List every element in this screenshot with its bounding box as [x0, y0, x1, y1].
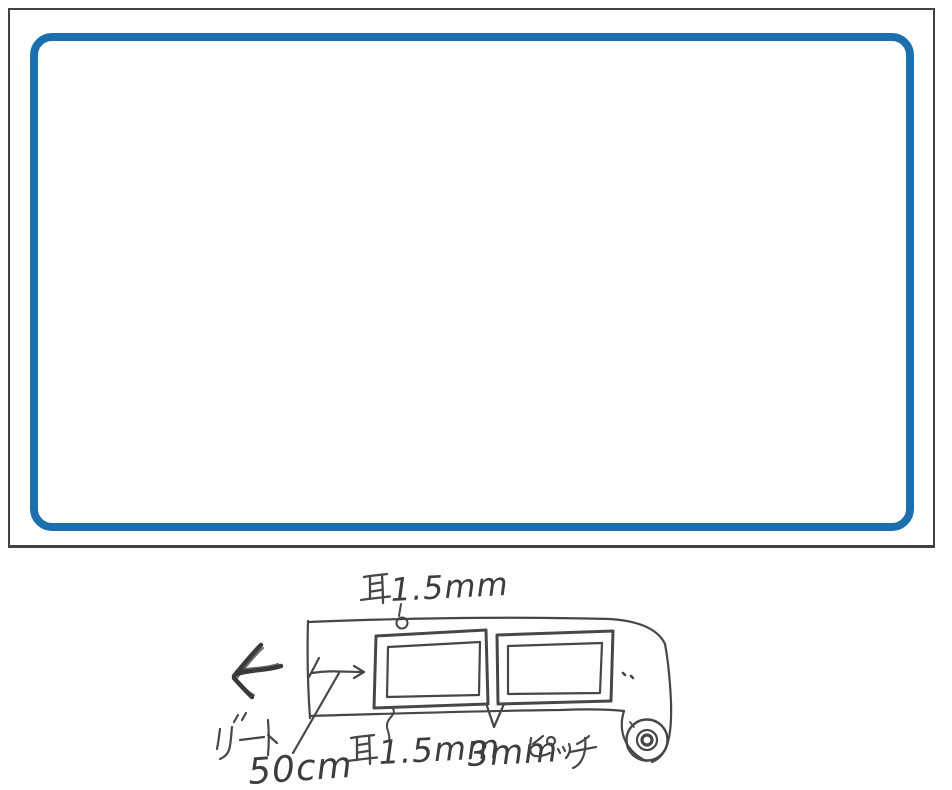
scanned-sheet: 1.5mm 1.5mm 50cm [0, 0, 952, 790]
lead-annotation: 50cm [217, 713, 354, 790]
ear-top-value: 1.5mm [389, 565, 509, 609]
dimension-vertical-line [308, 621, 310, 718]
pitch-value: 3mm [466, 730, 559, 775]
roll-core-icon [627, 720, 668, 761]
label-window-2 [497, 631, 613, 704]
kanji-ear-icon [361, 574, 390, 603]
lead-dimension [293, 621, 364, 753]
lead-leader-line [293, 673, 339, 753]
feed-direction-arrow [234, 645, 281, 697]
tape-bottom-edge [310, 709, 624, 716]
roll-spec-sketch: 1.5mm 1.5mm 50cm [0, 0, 952, 790]
kanji-ear-icon [348, 735, 377, 764]
continuation-dots [623, 673, 633, 678]
label-window-1 [374, 630, 488, 708]
feed-arrow-shaft [312, 671, 363, 673]
pitch-annotation: 3mm [466, 704, 596, 775]
dimension-tail-tick [309, 658, 319, 677]
lead-value: 50cm [247, 745, 354, 790]
pitch-v-mark [487, 704, 504, 727]
